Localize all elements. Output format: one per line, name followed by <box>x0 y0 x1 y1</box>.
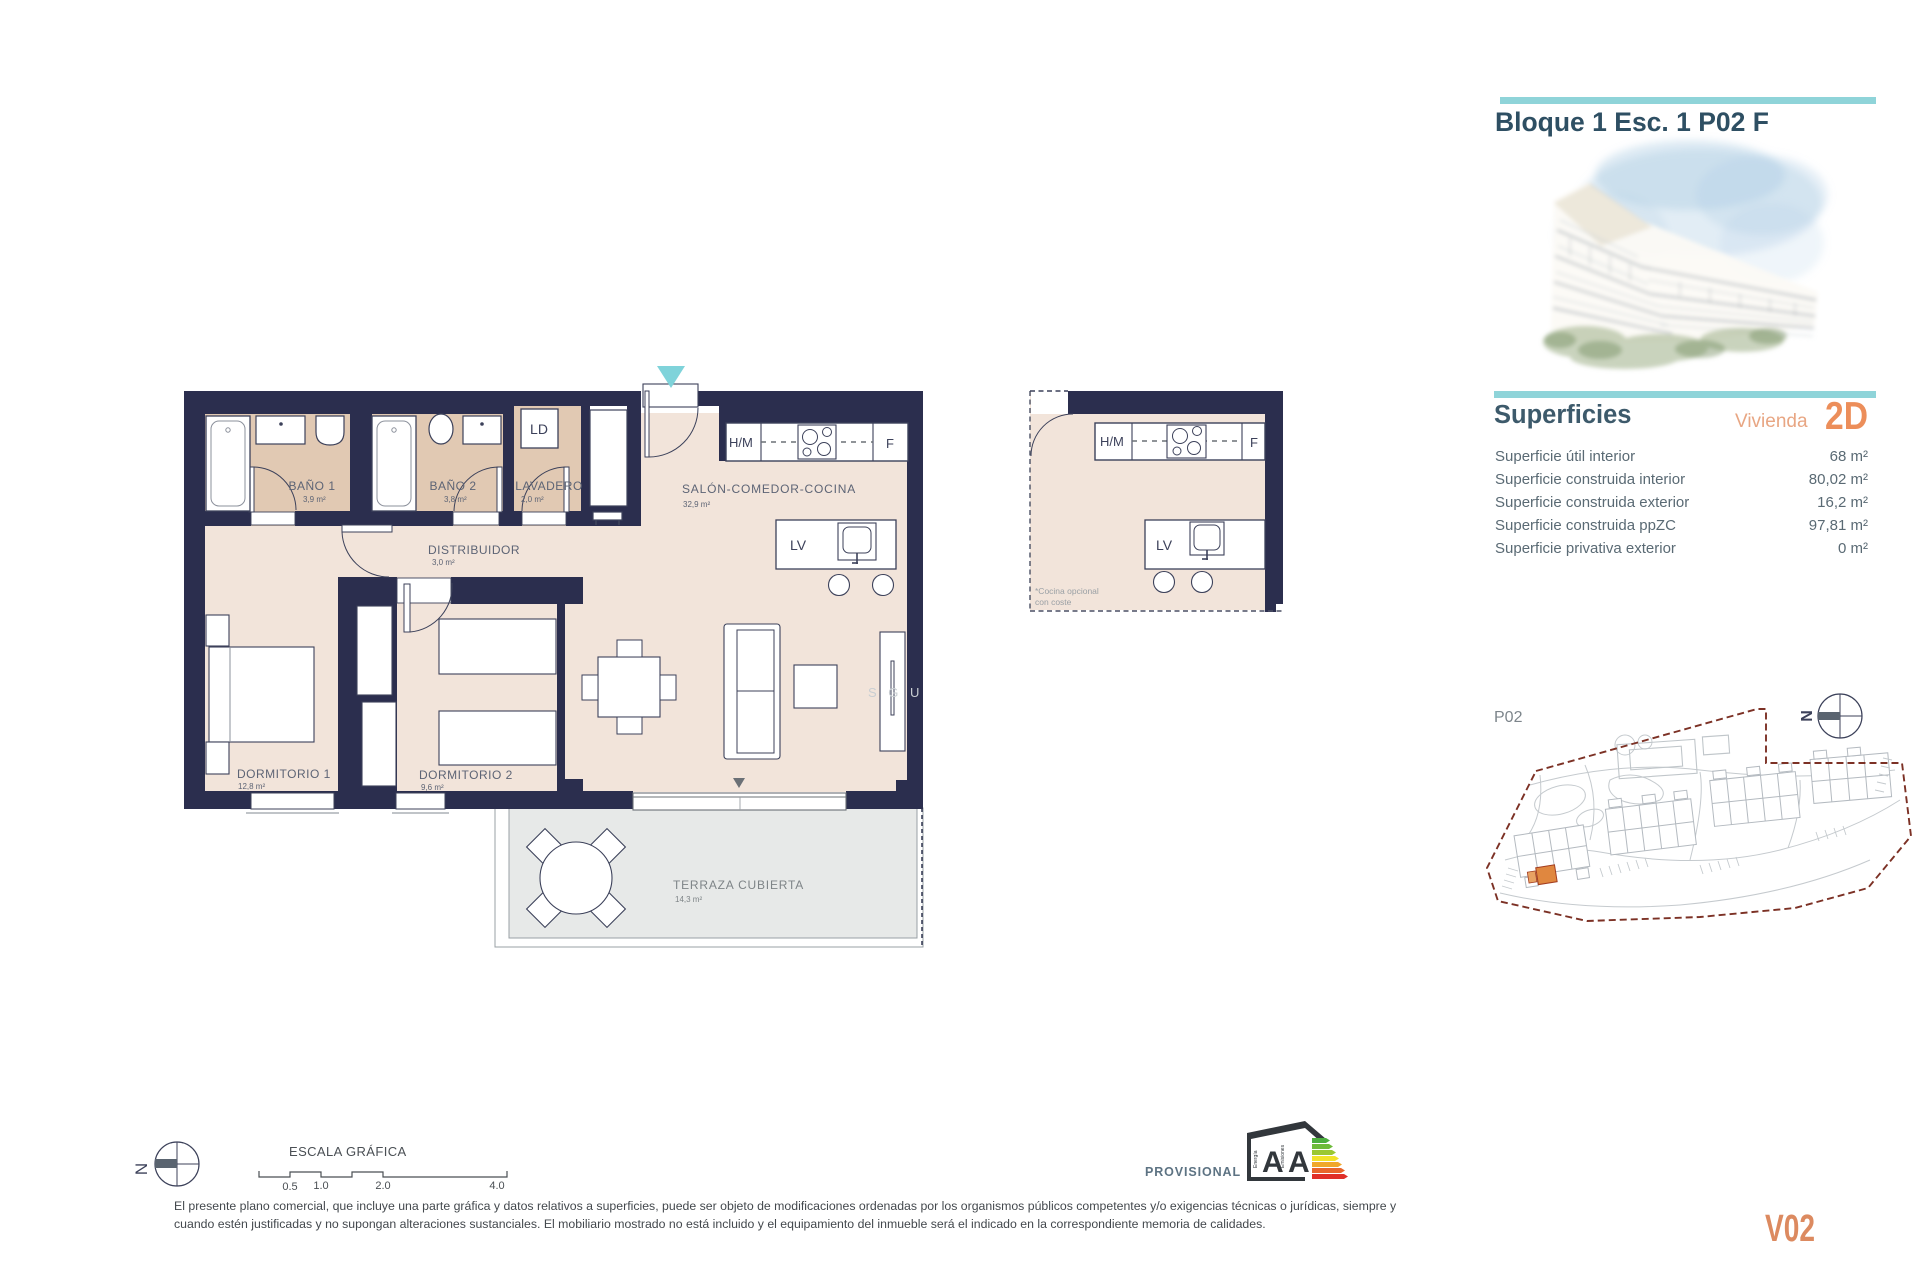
svg-text:H/M: H/M <box>1100 434 1124 449</box>
svg-text:0 m²: 0 m² <box>1838 540 1868 557</box>
svg-text:12,8 m²: 12,8 m² <box>238 782 265 791</box>
svg-text:con coste: con coste <box>1035 597 1072 607</box>
svg-text:F: F <box>886 436 894 451</box>
svg-text:*Cocina opcional: *Cocina opcional <box>1035 586 1099 596</box>
svg-text:DISTRIBUIDOR: DISTRIBUIDOR <box>428 543 520 557</box>
svg-text:3,9 m²: 3,9 m² <box>303 495 326 504</box>
svg-text:2D: 2D <box>1825 395 1868 438</box>
svg-text:S G U: S G U <box>868 685 923 700</box>
svg-text:P02: P02 <box>1494 709 1523 726</box>
svg-text:A: A <box>1288 1146 1310 1179</box>
svg-text:DORMITORIO 2: DORMITORIO 2 <box>419 768 513 782</box>
svg-text:Vivienda: Vivienda <box>1735 411 1808 432</box>
svg-text:ESCALA GRÁFICA: ESCALA GRÁFICA <box>289 1144 407 1159</box>
svg-text:97,81 m²: 97,81 m² <box>1809 517 1868 534</box>
svg-text:V02: V02 <box>1765 1208 1815 1250</box>
svg-text:BAÑO 1: BAÑO 1 <box>288 479 335 493</box>
svg-text:Emisiones: Emisiones <box>1280 1144 1286 1168</box>
svg-text:El presente plano comercial, q: El presente plano comercial, que incluye… <box>174 1199 1397 1213</box>
svg-text:1.0: 1.0 <box>313 1180 328 1192</box>
svg-text:Bloque 1 Esc. 1 P02 F: Bloque 1 Esc. 1 P02 F <box>1495 107 1769 137</box>
svg-text:80,02 m²: 80,02 m² <box>1809 471 1868 488</box>
svg-text:LV: LV <box>1156 537 1173 553</box>
svg-text:32,9 m²: 32,9 m² <box>683 500 710 509</box>
svg-text:H/M: H/M <box>729 435 753 450</box>
svg-text:LV: LV <box>790 537 807 553</box>
svg-text:68 m²: 68 m² <box>1830 448 1868 465</box>
svg-text:Superficie construida ppZC: Superficie construida ppZC <box>1495 517 1676 534</box>
svg-text:LAVADERO: LAVADERO <box>515 479 583 493</box>
svg-text:14,3 m²: 14,3 m² <box>675 895 702 904</box>
svg-text:PROVISIONAL: PROVISIONAL <box>1145 1165 1241 1179</box>
svg-text:Superficie útil interior: Superficie útil interior <box>1495 448 1635 465</box>
svg-text:Superficie construida interior: Superficie construida interior <box>1495 471 1685 488</box>
svg-text:LD: LD <box>530 421 548 437</box>
svg-text:0.5: 0.5 <box>282 1181 297 1193</box>
svg-text:Superficie construida exterior: Superficie construida exterior <box>1495 494 1689 511</box>
svg-text:TERRAZA CUBIERTA: TERRAZA CUBIERTA <box>673 878 804 892</box>
svg-text:BAÑO 2: BAÑO 2 <box>429 479 476 493</box>
svg-text:9,6 m²: 9,6 m² <box>421 783 444 792</box>
svg-text:Superficie privativa exterior: Superficie privativa exterior <box>1495 540 1676 557</box>
svg-text:Superficies: Superficies <box>1494 401 1631 429</box>
svg-text:16,2 m²: 16,2 m² <box>1817 494 1868 511</box>
svg-text:4.0: 4.0 <box>489 1180 504 1192</box>
svg-text:DORMITORIO 1: DORMITORIO 1 <box>237 767 331 781</box>
svg-text:cuando estén justificadas y no: cuando estén justificadas y no supongan … <box>174 1217 1266 1231</box>
svg-text:SALÓN-COMEDOR-COCINA: SALÓN-COMEDOR-COCINA <box>682 481 856 496</box>
svg-text:N: N <box>1799 710 1816 722</box>
svg-text:2.0: 2.0 <box>375 1180 390 1192</box>
svg-text:3,8 m²: 3,8 m² <box>444 495 467 504</box>
svg-text:3,0 m²: 3,0 m² <box>432 558 455 567</box>
svg-text:N: N <box>132 1163 151 1175</box>
svg-text:2,0 m²: 2,0 m² <box>521 495 544 504</box>
svg-text:Energía: Energía <box>1253 1150 1259 1168</box>
svg-text:F: F <box>1250 435 1258 450</box>
